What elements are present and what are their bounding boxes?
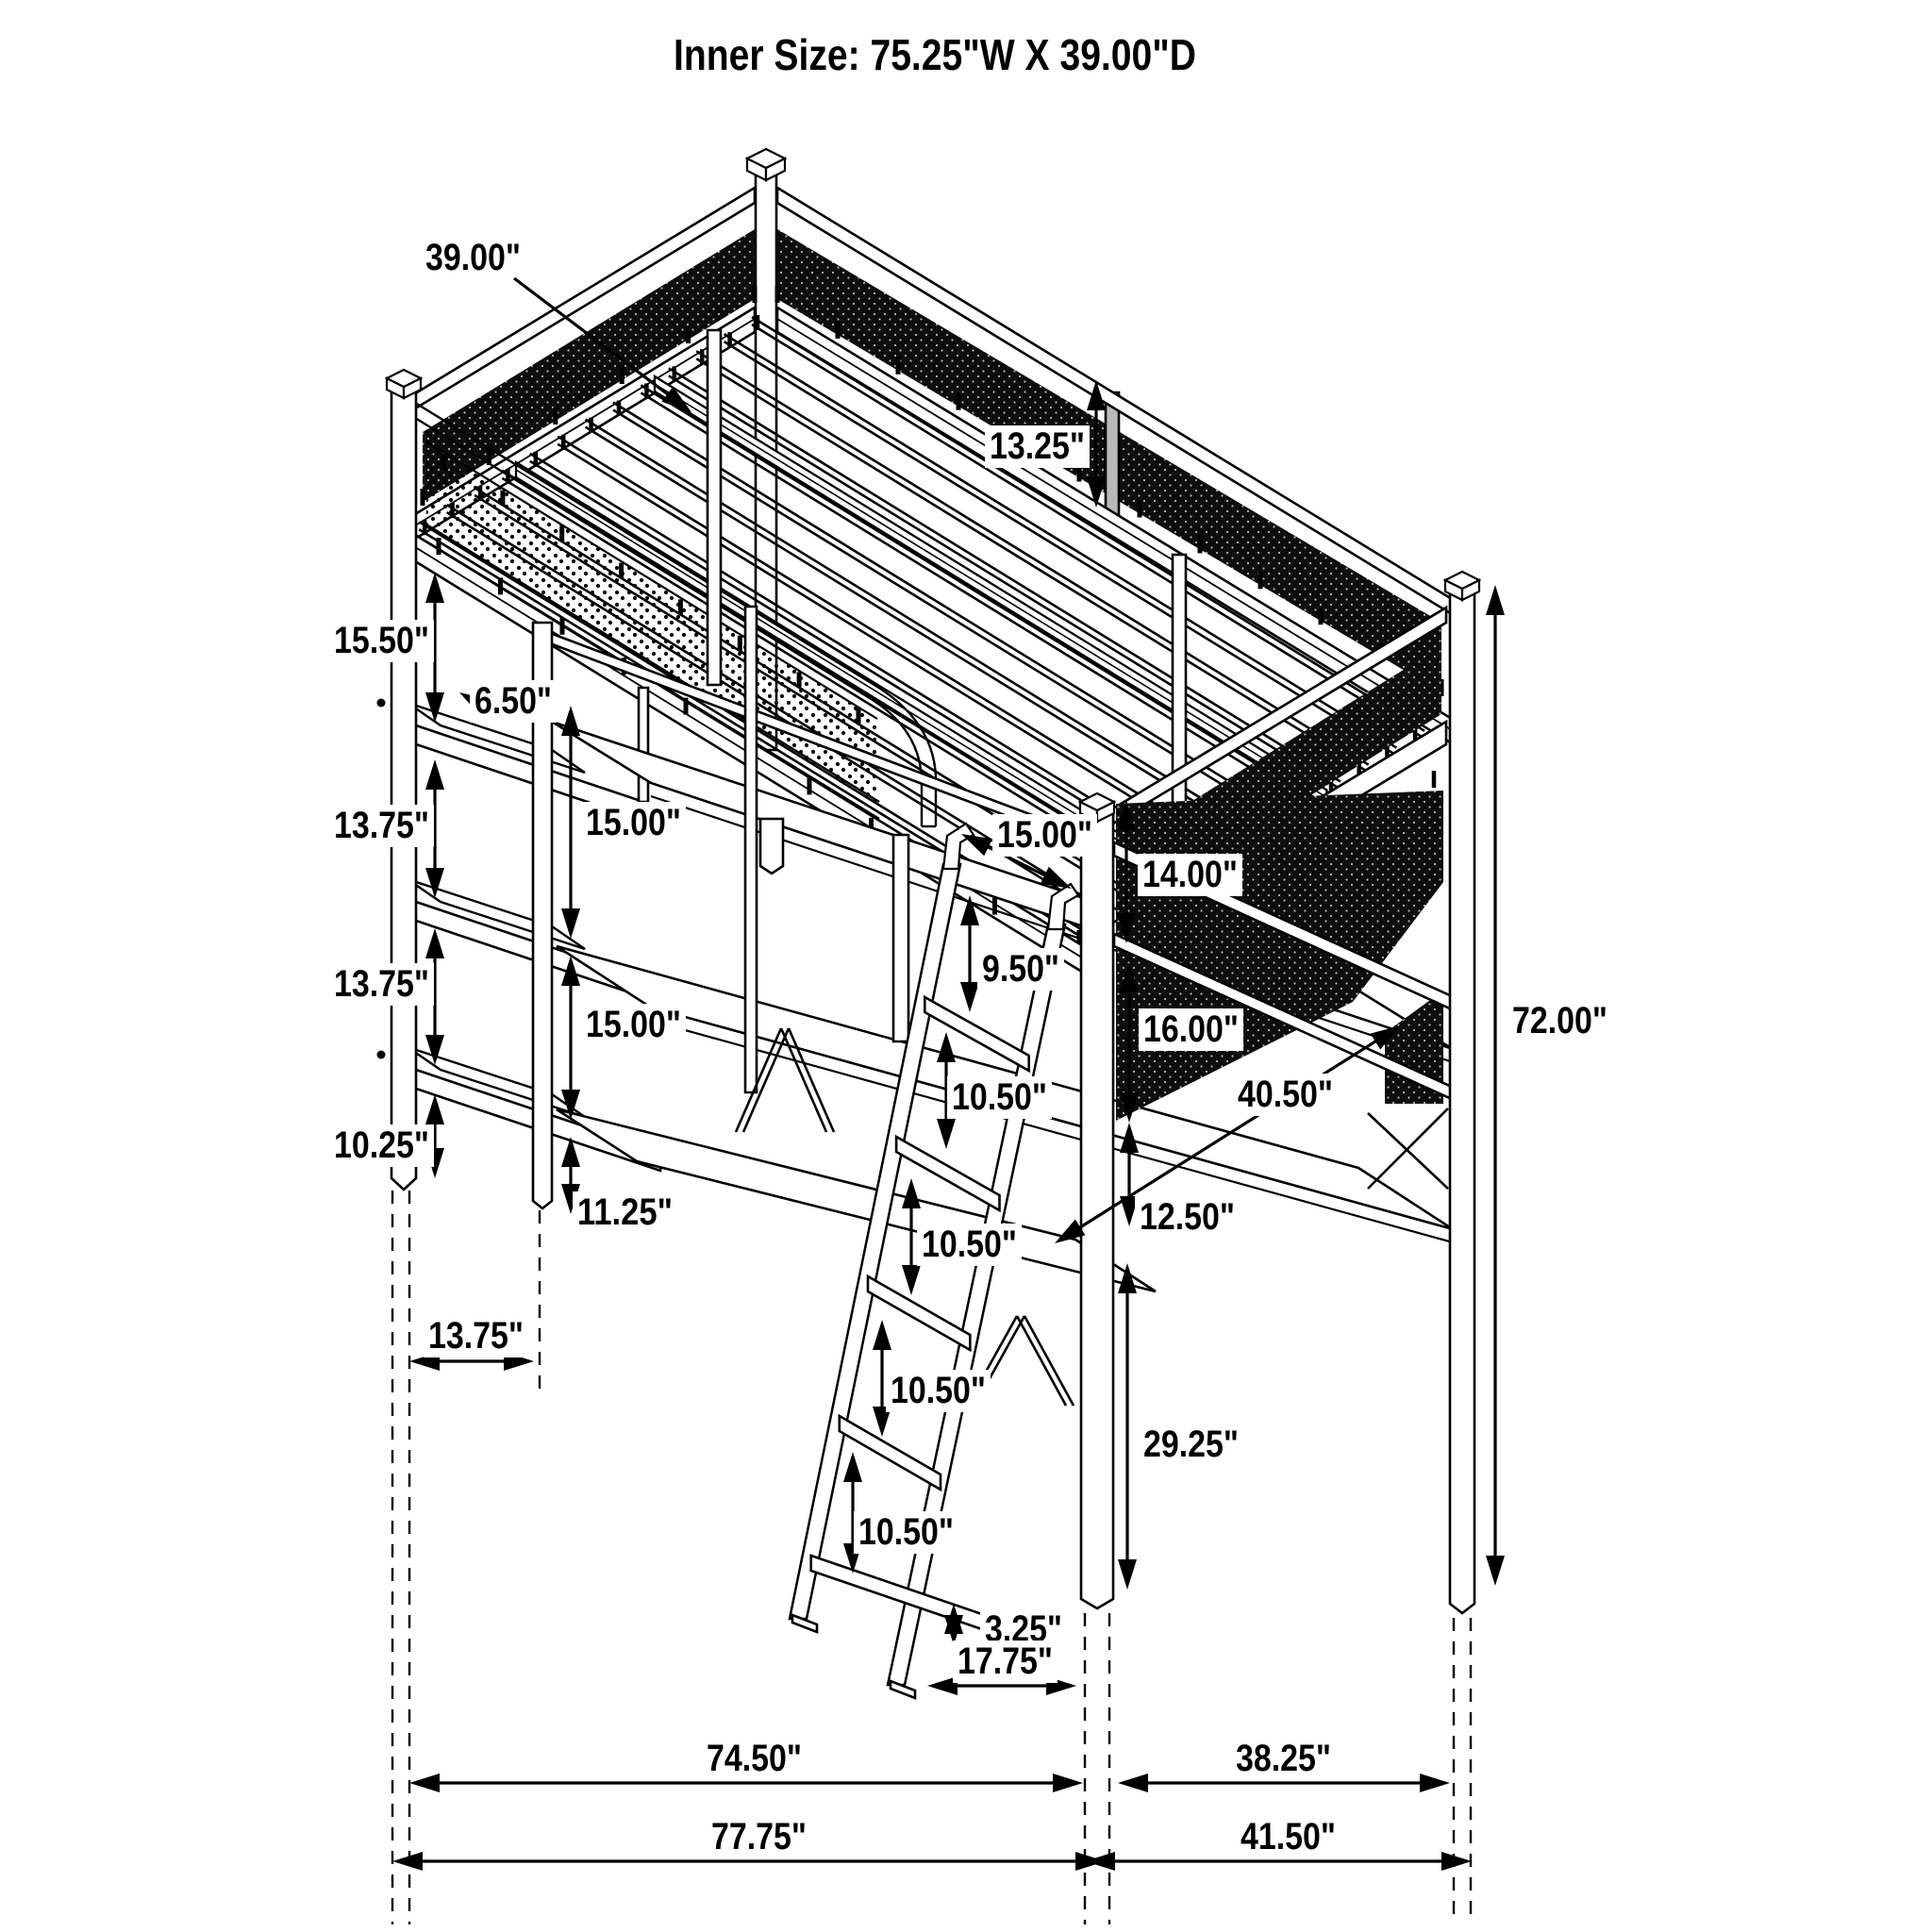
svg-text:14.00": 14.00" bbox=[1142, 854, 1238, 895]
svg-text:6.50": 6.50" bbox=[475, 680, 552, 722]
svg-text:11.25": 11.25" bbox=[577, 1191, 673, 1233]
svg-text:74.50": 74.50" bbox=[707, 1738, 802, 1779]
svg-text:10.50": 10.50" bbox=[858, 1511, 954, 1553]
svg-text:Inner Size: 75.25"W X 39.00"D: Inner Size: 75.25"W X 39.00"D bbox=[674, 30, 1196, 79]
svg-text:15.00": 15.00" bbox=[586, 1004, 681, 1045]
svg-text:15.00": 15.00" bbox=[997, 814, 1092, 856]
svg-text:38.25": 38.25" bbox=[1236, 1738, 1331, 1779]
svg-text:40.50": 40.50" bbox=[1238, 1074, 1333, 1115]
svg-text:10.25": 10.25" bbox=[334, 1124, 429, 1166]
svg-text:10.50": 10.50" bbox=[952, 1076, 1047, 1118]
svg-text:29.25": 29.25" bbox=[1143, 1424, 1239, 1465]
svg-text:77.75": 77.75" bbox=[711, 1816, 807, 1857]
svg-text:10.50": 10.50" bbox=[891, 1370, 986, 1411]
svg-text:13.75": 13.75" bbox=[428, 1315, 524, 1357]
svg-text:13.75": 13.75" bbox=[334, 963, 429, 1005]
svg-text:17.75": 17.75" bbox=[958, 1641, 1053, 1682]
svg-text:13.75": 13.75" bbox=[334, 805, 429, 846]
svg-text:12.50": 12.50" bbox=[1140, 1196, 1235, 1238]
svg-text:41.50": 41.50" bbox=[1241, 1816, 1336, 1857]
svg-text:72.00": 72.00" bbox=[1512, 1000, 1607, 1041]
svg-text:13.25": 13.25" bbox=[990, 425, 1085, 467]
svg-text:15.00": 15.00" bbox=[586, 802, 681, 843]
svg-text:15.50": 15.50" bbox=[334, 620, 429, 661]
svg-text:9.50": 9.50" bbox=[982, 948, 1059, 990]
svg-text:16.00": 16.00" bbox=[1143, 1008, 1239, 1050]
svg-text:10.50": 10.50" bbox=[922, 1224, 1017, 1265]
svg-text:39.00": 39.00" bbox=[425, 237, 521, 278]
